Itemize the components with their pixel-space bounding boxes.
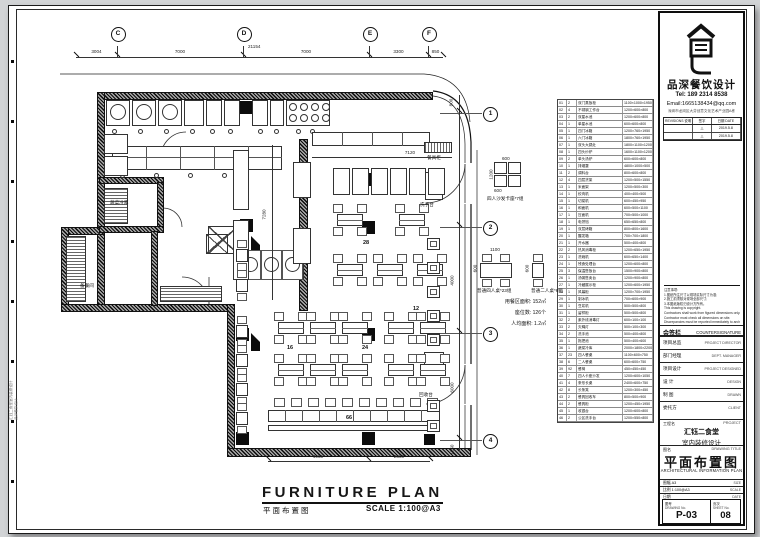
plan-title: FURNITURE PLAN [262,484,443,504]
storage-rack [66,236,86,302]
dim-value: 6000 [450,382,455,392]
item-no: 39 [558,366,567,372]
item-name: 压面机 [577,212,623,218]
countersign-row: 项目设计PROJECT DESIGNED [660,362,743,375]
item-name: 蔬菜冷库 [577,345,623,351]
wall [158,183,163,232]
item-qty: 2 [567,317,577,323]
schedule-row: 081四头炒炉1600×1100×1200 [558,149,653,156]
schedule-row: 051四门冰箱1200×760×1950 [558,128,653,135]
item-size: 500×400×600 [623,338,653,344]
chair [384,335,394,344]
item-size: 1100×1000×1950 [623,100,653,106]
sign-label-en: DEPT. MANAGER [712,354,741,358]
revisions-cell: 2019.5.8 [712,125,741,132]
kitchen-island-worktable [112,146,282,170]
item-name: 绞肉机 [577,191,623,197]
grid-stem [243,46,244,57]
chair [397,254,407,263]
schedule-row: 171压面机700×500×1000 [558,212,653,219]
item-qty: 1 [567,303,577,309]
company-address: 深圳市龙岗区大芬创意文化艺术产业园A栋 [660,109,743,114]
item-size: 1600×1100×1200 [623,149,653,155]
chair [338,354,348,363]
item-name: 公区洗手台 [577,415,623,421]
item-qty: 1 [567,205,577,211]
wall [228,449,470,456]
room-label: 餐具柜 [427,155,441,161]
booth-seat [333,168,350,195]
counter-stool [430,241,437,247]
item-no: 16 [558,205,567,211]
item-size: 600×600×800 [623,121,653,127]
item-size: 500×500×800 [623,303,653,309]
schedule-row: 041单星水池600×600×800 [558,121,653,128]
item-size: 2400×600×750 [623,380,653,386]
schedule-row: 024不锈钢工作台1200×600×800 [558,107,653,114]
steamer-burner [311,103,319,111]
item-name: 灭蝇灯 [577,324,623,330]
item-no: 29 [558,296,567,302]
item-qty: 1 [567,198,577,204]
item-no: 12 [558,177,567,183]
item-qty: 1 [567,233,577,239]
frame-tick [11,60,14,63]
schedule-row: 112调料台800×600×800 [558,170,653,177]
chair [419,227,429,236]
chair [237,426,247,434]
dim-value: 7000 [160,49,200,54]
chair [338,335,348,344]
item-name: 双星水池 [577,114,623,120]
schedule-row: 012双门蒸饭柜1100×1000×1950 [558,100,653,107]
item-name: 电饼铛 [577,219,623,225]
drawing-no-label-en: DRAWING No. [665,506,686,510]
legend-chair [500,279,510,287]
dim-value: 4955 [298,454,338,459]
item-qty: 1 [567,310,577,316]
item-qty: 1 [567,163,577,169]
item-name: 四门冰箱 [577,128,623,134]
room-label: 洗手台 [420,202,434,208]
chair [237,316,247,324]
item-size: 600×450×950 [623,198,653,204]
item-size: 500×100×300 [623,324,653,330]
item-size: 600×650×1400 [623,254,653,260]
item-name: 残食处理台 [577,261,623,267]
schedule-row: 332灭蝇灯500×100×300 [558,324,653,331]
note-line: Contractors shall work from figured dime… [664,311,740,316]
meta-row: 比例 1:100@A3SCALE [660,486,743,493]
chair [362,335,372,344]
item-size: 1200×500×300 [623,184,653,190]
dim-value: 1150 [449,445,454,455]
item-name: 热风消毒柜 [577,247,623,253]
item-qty: 1 [567,219,577,225]
item-size: 500×400×800 [623,240,653,246]
item-name: 洗手池 [577,331,623,337]
item-qty: 1 [567,289,577,295]
item-no: 26 [558,275,567,281]
legend-dim: 1200 [489,169,494,179]
item-name: 豆浆机 [577,303,623,309]
item-size: 700×500×1000 [623,212,653,218]
sign-label-zh: 设 计 [663,379,673,385]
item-qty: 4 [567,107,577,113]
chair [237,270,247,278]
schedule-row: 342洗手池500×400×800 [558,331,653,338]
schedule-row: 032双星水池1200×600×800 [558,114,653,121]
chair [306,335,316,344]
serving-counter [293,228,311,264]
chair [274,335,284,344]
schedule-row: 061六门冰箱1800×760×1950 [558,135,653,142]
notes-block: 注意事项:1.图纸所注尺寸以现场实际尺寸为准;2.施工前须核对现场全部尺寸;3.… [664,285,740,325]
item-no: 17 [558,212,567,218]
item-qty: 2 [567,331,577,337]
table-line [399,220,425,221]
schedule-row: 361蔬菜冷库2000×1800×2200 [558,345,653,352]
dim-value: 3004 [77,49,117,54]
schedule-row: 271冷藏展示柜1200×600×1950 [558,282,653,289]
dining-table-2p [236,249,248,262]
countersign-row: 委托方CLIENT [660,401,743,424]
item-no: 01 [558,100,567,106]
dim-line [459,95,460,452]
item-no: 21 [558,240,567,246]
schedule-row: 222热风消毒柜1200×650×1950 [558,247,653,254]
schedule-row: 414条形长桌2400×600×750 [558,380,653,387]
chair [237,240,247,248]
dim-line [76,57,443,58]
item-no: 09 [558,156,567,162]
item-no: 37 [558,352,567,358]
chair [440,354,450,363]
item-no: 34 [558,331,567,337]
grid-stem [428,46,429,57]
item-size: 1800×760×1950 [623,135,653,141]
schedule-row: 281风幕柜1200×700×1950 [558,289,653,296]
item-qty: 2 [567,394,577,400]
item-size: 1200×300×450 [623,387,653,393]
legend-dim: 1100 [490,247,500,252]
schedule-row: 432餐具回收车800×500×900 [558,394,653,401]
legend-table4-label: 普通四人桌*23组 [477,288,511,294]
schedule-row: 428长条凳1200×300×450 [558,387,653,394]
item-no: 40 [558,373,567,379]
steamer-burner [322,114,330,122]
equipment-callout-bubble [258,129,263,134]
item-name: 不锈钢工作台 [577,107,623,113]
frame-tick [11,120,14,123]
chair [338,312,348,321]
grid-bubble: 2 [483,221,498,236]
drawing-title-row: 图名 DRAWING TITLE 平面布置图 ARCHITECTURAL INF… [660,445,743,479]
legend-chair [533,254,543,262]
item-size: 500×500×800 [623,310,653,316]
countersign-en: COUNTERSIGNATURE [696,330,741,335]
booth-seat [409,168,426,195]
schedule-row: 211开水器500×400×800 [558,240,653,247]
chair [384,312,394,321]
prep-counter [233,150,249,210]
steamer-burner [311,114,319,122]
item-size: 1200×600×1950 [623,282,653,288]
legend-chair [500,254,510,262]
revisions-cell: 2019.5.8 [712,133,741,140]
schedule-row: 231洗碗机600×650×1400 [558,254,653,261]
equipment-schedule-table: 012双门蒸饭柜1100×1000×1950024不锈钢工作台1200×600×… [557,99,654,423]
project-name-line1: 汇钰二食堂 [660,427,743,437]
grid-bubble: D [237,27,252,42]
item-qty: 4 [567,380,577,386]
item-no: 43 [558,394,567,400]
schedule-row: 253保温售饭台1500×900×800 [558,268,653,275]
item-name: 收银台 [577,408,623,414]
chair [357,204,367,213]
item-name: 制冰机 [577,296,623,302]
schedule-row: 291制冰机700×600×900 [558,296,653,303]
wok-stove-burner [162,104,178,120]
long-table [268,410,440,422]
booth-seat [390,168,407,195]
item-qty: 1 [567,254,577,260]
long-table-divider [319,410,320,422]
item-name: 单头汤炉 [577,156,623,162]
item-no: 23 [558,254,567,260]
sign-label-en: PROJECT DIRECTOR [705,341,741,345]
item-no: 11 [558,170,567,176]
kitchen-equipment [224,100,240,126]
item-no: 05 [558,128,567,134]
schedule-row: 451收银台1200×600×800 [558,408,653,415]
chair [237,403,247,411]
item-no: 10 [558,163,567,169]
item-name: 排烟罩 [577,163,623,169]
item-name: 六门冰箱 [577,135,623,141]
frame-tick [11,420,14,423]
item-no: 20 [558,233,567,239]
item-name: 餐椅 [577,366,623,372]
grid-bubble: C [111,27,126,42]
schedule-row: 151切菜机600×450×950 [558,198,653,205]
chair [306,377,316,386]
revisions-cell [664,133,693,140]
item-qty: 23 [567,352,577,358]
table-line [310,370,336,371]
equipment-callout-bubble [296,129,301,134]
item-name: 切菜机 [577,198,623,204]
seat-count-label: 16 [287,345,293,351]
legend-dim: 600 [494,188,502,193]
sign-label-zh: 制 图 [663,392,673,398]
chair [357,254,367,263]
item-no: 04 [558,121,567,127]
wall [152,232,157,305]
item-name: 双头大锅灶 [577,142,623,148]
schedule-row: 442餐具柜1200×450×1950 [558,401,653,408]
schedule-row: 3992餐椅450×450×450 [558,366,653,373]
item-size: 800×800×1600 [623,226,653,232]
item-size: 700×600×900 [623,296,653,302]
item-no: 31 [558,310,567,316]
bench-chair [359,398,370,407]
item-size: 1100×600×750 [623,352,653,358]
item-size: 650×650×800 [623,219,653,225]
room-label: 回收台 [419,392,433,398]
item-qty: 1 [567,408,577,414]
kitchen-counter [104,156,128,176]
table-line [337,270,363,271]
schedule-row: 407四人卡座沙发1200×600×1050 [558,373,653,380]
item-size: 1200×650×1950 [623,247,653,253]
item-no: 41 [558,380,567,386]
chair [274,354,284,363]
item-size: 400×400×500 [623,191,653,197]
item-name: 餐具柜 [577,401,623,407]
table-line [337,220,363,221]
counter-stool [430,313,437,319]
item-qty: 2 [567,114,577,120]
item-name: 留样柜 [577,310,623,316]
grid-stem [117,46,118,57]
dining-table-2p [236,279,248,292]
item-qty: 3 [567,268,577,274]
item-qty: 2 [567,156,577,162]
dim-value: 2600 [379,454,419,459]
mop-sink [206,234,228,254]
plan-scale: SCALE 1:100@A3 [366,504,441,513]
schedule-row: 124四层货架1200×500×1550 [558,177,653,184]
item-no: 35 [558,338,567,344]
room-label: 蔬菜冷库 [110,200,128,206]
item-no: 46 [558,415,567,421]
schedule-row: 092单头汤炉600×600×800 [558,156,653,163]
item-no: 15 [558,198,567,204]
item-no: 25 [558,268,567,274]
equipment-callout-bubble [222,173,227,178]
item-name: 单星水池 [577,121,623,127]
item-no: 32 [558,317,567,323]
dining-stats-line: 用餐区面积: 152㎡ [470,298,546,305]
chair [384,354,394,363]
item-qty: 1 [567,296,577,302]
item-name: 双层烤箱 [577,226,623,232]
schedule-row: 241残食处理台1200×600×800 [558,261,653,268]
legend-booth-cell [494,175,507,187]
equipment-callout-bubble [210,129,215,134]
grid-bubble: 3 [483,327,498,342]
meta-right: DATE [732,495,741,499]
sign-label-en: PROJECT DESIGNED [705,367,741,371]
item-name: 四人餐桌 [577,352,623,358]
kitchen-counter [104,134,128,154]
bench-chair [410,398,421,407]
item-qty: 7 [567,373,577,379]
long-table-divider [353,410,354,422]
dim-value: 4000 [450,275,455,285]
revisions-row: △2019.5.8 [664,133,741,141]
booth-seat [352,168,369,195]
wok-stove-burner [136,104,152,120]
item-qty: 1 [567,240,577,246]
dim-line [268,461,430,462]
legend-chair [482,254,492,262]
storage-rack [160,286,222,302]
booth-seat [371,168,388,195]
chair [333,204,343,213]
item-size: 600×600×800 [623,156,653,162]
item-no: 38 [558,359,567,365]
counter-stool [430,337,437,343]
serving-counter [293,162,311,198]
schedule-row: 141绞肉机400×400×500 [558,191,653,198]
frame-tick [11,360,14,363]
chair [333,227,343,236]
item-no: 06 [558,135,567,141]
sign-label-zh: 部门经理 [663,353,681,359]
structural-column [424,434,435,445]
wall [100,93,432,99]
revisions-cell: △ [693,133,711,140]
steamer-burner [322,103,330,111]
schedule-row: 071双头大锅灶1800×1100×1200 [558,142,653,149]
table-line [310,328,336,329]
chair [237,374,247,382]
item-name: 保温售饭台 [577,268,623,274]
item-size: 1200×700×1950 [623,289,653,295]
legend-table2-label: 普通二人桌*6组 [531,288,563,294]
legend-dim: 600 [524,265,529,273]
item-size: 1200×600×800 [623,107,653,113]
island-divider [180,146,181,170]
item-qty: 1 [567,149,577,155]
schedule-row: 261汤粥售卖台1200×900×800 [558,275,653,282]
chair [237,345,247,353]
item-name: 和面机 [577,205,623,211]
chair [416,335,426,344]
sheet-no-value: 08 [711,510,740,521]
meta-row: 图幅 A3SIZE [660,479,743,486]
schedule-row: 191双层烤箱800×800×1600 [558,226,653,233]
countersign-row: 项目总监PROJECT DIRECTOR [660,336,743,349]
overall-dim-value: 21154 [248,44,260,49]
countersign-row: 制 图DRAWN [660,388,743,401]
item-name: 四头炒炉 [577,149,623,155]
dim-value: 800 [448,99,453,107]
item-name: 调料台 [577,170,623,176]
booth-seat [428,168,445,195]
item-size: 1800×1100×1200 [623,142,653,148]
kitchen-equipment [184,100,204,126]
item-size: 1200×600×1050 [623,373,653,379]
chair [333,277,343,286]
dim-value: 7120 [390,150,430,155]
item-size: 1200×500×1550 [623,177,653,183]
table-line [278,328,304,329]
sign-label-zh: 项目设计 [663,366,681,372]
chair [237,293,247,301]
schedule-row: 462公区洗手台1200×550×800 [558,415,653,422]
meta-right: SCALE [730,488,741,492]
table-line [420,328,446,329]
bench-chair [342,398,353,407]
company-name: 品深餐饮设计 [660,77,743,92]
item-size: 1200×600×800 [623,114,653,120]
chair [306,354,316,363]
item-size: 450×450×450 [623,366,653,372]
countersign-row: 部门经理DEPT. MANAGER [660,349,743,362]
